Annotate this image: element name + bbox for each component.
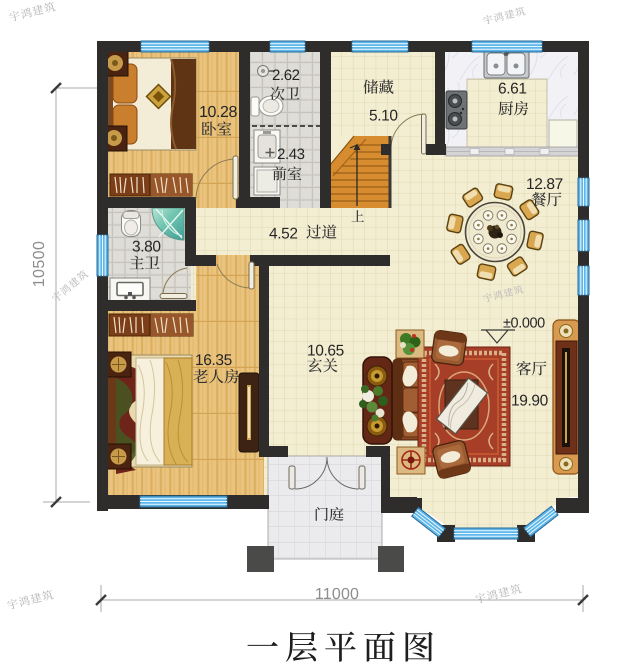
svg-text:12.87: 12.87 xyxy=(526,176,563,193)
svg-text:10500: 10500 xyxy=(31,241,48,288)
svg-text:16.35: 16.35 xyxy=(195,352,232,369)
svg-text:4.52: 4.52 xyxy=(269,226,298,243)
svg-text:±0.000: ±0.000 xyxy=(503,316,545,332)
svg-text:19.90: 19.90 xyxy=(511,393,549,410)
svg-text:2.62: 2.62 xyxy=(272,67,300,84)
svg-text:3.80: 3.80 xyxy=(132,239,161,256)
svg-text:10.28: 10.28 xyxy=(199,104,238,121)
svg-text:11000: 11000 xyxy=(315,586,359,603)
svg-text:5.10: 5.10 xyxy=(369,108,398,125)
svg-text:6.61: 6.61 xyxy=(498,81,527,98)
svg-text:10.65: 10.65 xyxy=(307,343,344,360)
svg-text:2.43: 2.43 xyxy=(277,146,305,163)
